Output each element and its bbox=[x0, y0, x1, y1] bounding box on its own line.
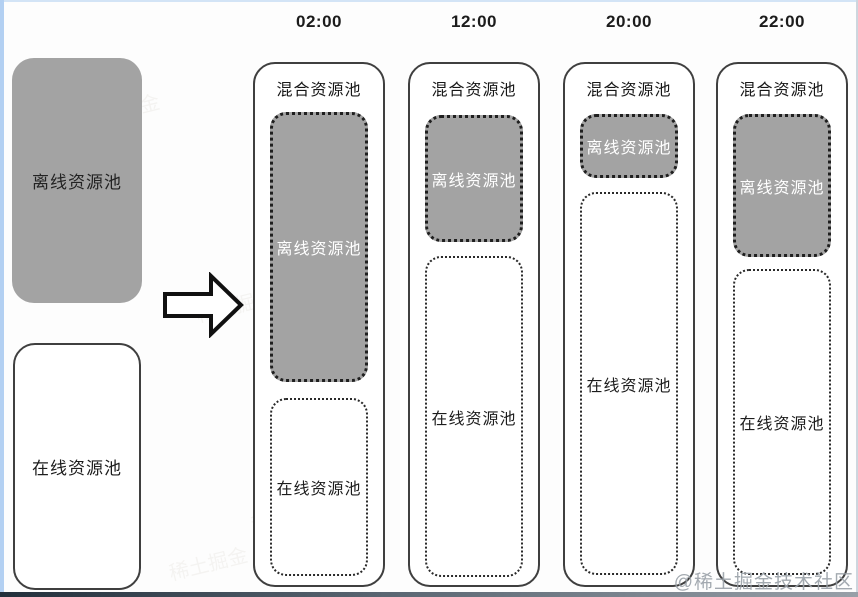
online-pool-label: 在线资源池 bbox=[431, 405, 516, 429]
online-pool-box: 在线资源池 bbox=[733, 269, 831, 575]
offline-pool-source-label: 离线资源池 bbox=[32, 168, 122, 193]
mixed-pool-header: 混合资源池 bbox=[718, 76, 846, 100]
online-pool-label: 在线资源池 bbox=[739, 410, 824, 434]
mixed-pool-header: 混合资源池 bbox=[255, 76, 383, 100]
online-pool-label: 在线资源池 bbox=[276, 475, 361, 499]
time-label-2200: 22:00 bbox=[716, 12, 848, 32]
offline-pool-source-box: 离线资源池 bbox=[12, 58, 142, 303]
mixed-pool-header: 混合资源池 bbox=[410, 76, 538, 100]
online-pool-label: 在线资源池 bbox=[586, 372, 671, 396]
mixed-pool-column-1200: 混合资源池 离线资源池 在线资源池 bbox=[408, 62, 540, 587]
offline-pool-label: 离线资源池 bbox=[431, 167, 516, 191]
time-label-2000: 20:00 bbox=[563, 12, 695, 32]
offline-pool-box: 离线资源池 bbox=[580, 114, 678, 178]
offline-pool-box: 离线资源池 bbox=[733, 114, 831, 257]
online-pool-box: 在线资源池 bbox=[270, 398, 368, 576]
mixed-pool-column-2200: 混合资源池 离线资源池 在线资源池 bbox=[716, 62, 848, 587]
time-label-1200: 12:00 bbox=[408, 12, 540, 32]
offline-pool-label: 离线资源池 bbox=[739, 174, 824, 198]
ghost-watermark: 稀土掘金 bbox=[166, 539, 251, 586]
top-edge-line bbox=[0, 0, 858, 2]
online-pool-source-box: 在线资源池 bbox=[13, 343, 141, 590]
mixed-pool-column-0200: 混合资源池 离线资源池 在线资源池 bbox=[253, 62, 385, 587]
resource-pool-diagram: 稀土掘金 稀土掘金 稀土掘金 稀土掘金 稀土掘金 稀土掘金 离线资源池 在线资源… bbox=[0, 0, 858, 597]
offline-pool-label: 离线资源池 bbox=[276, 235, 361, 259]
online-pool-source-label: 在线资源池 bbox=[32, 454, 122, 479]
site-watermark: @稀土掘金技术社区 bbox=[674, 567, 854, 594]
offline-pool-box: 离线资源池 bbox=[270, 112, 368, 382]
online-pool-box: 在线资源池 bbox=[425, 256, 523, 577]
left-edge-line bbox=[0, 0, 4, 597]
mixed-pool-header: 混合资源池 bbox=[565, 76, 693, 100]
right-arrow-icon bbox=[163, 272, 245, 338]
online-pool-box: 在线资源池 bbox=[580, 192, 678, 575]
offline-pool-label: 离线资源池 bbox=[586, 134, 671, 158]
mixed-pool-column-2000: 混合资源池 离线资源池 在线资源池 bbox=[563, 62, 695, 587]
time-label-0200: 02:00 bbox=[253, 12, 385, 32]
offline-pool-box: 离线资源池 bbox=[425, 115, 523, 242]
